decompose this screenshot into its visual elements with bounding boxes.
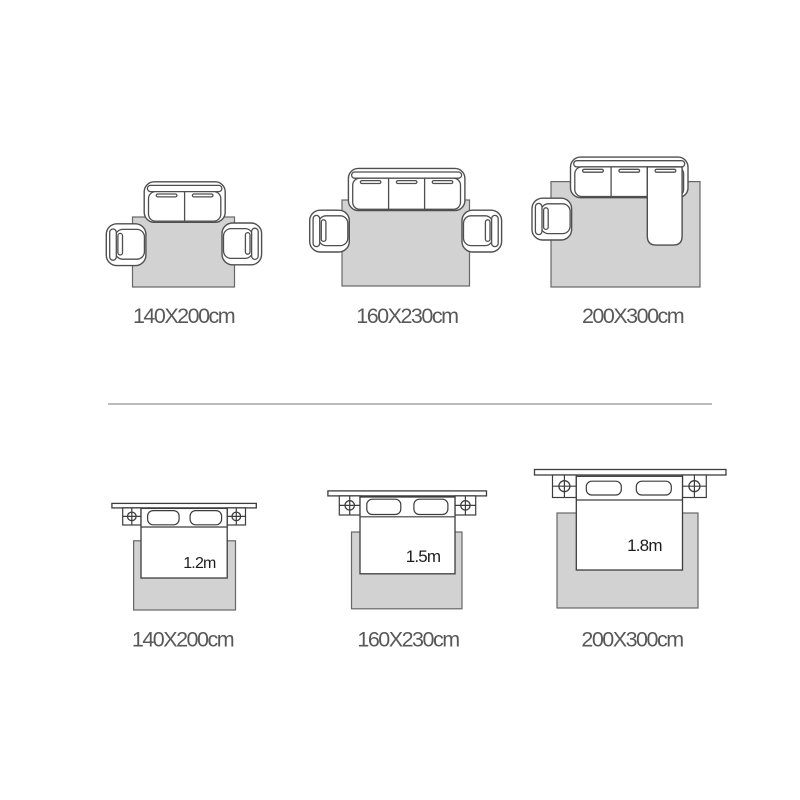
svg-text:1.2m: 1.2m — [183, 555, 216, 572]
svg-text:140X200cm: 140X200cm — [133, 304, 235, 328]
svg-text:140X200cm: 140X200cm — [132, 627, 234, 651]
svg-text:1.8m: 1.8m — [627, 536, 662, 555]
svg-text:200X300cm: 200X300cm — [581, 627, 683, 651]
svg-text:160X230cm: 160X230cm — [356, 304, 458, 328]
svg-text:160X230cm: 160X230cm — [357, 627, 459, 651]
svg-text:1.5m: 1.5m — [406, 547, 441, 566]
svg-text:200X300cm: 200X300cm — [582, 304, 684, 328]
